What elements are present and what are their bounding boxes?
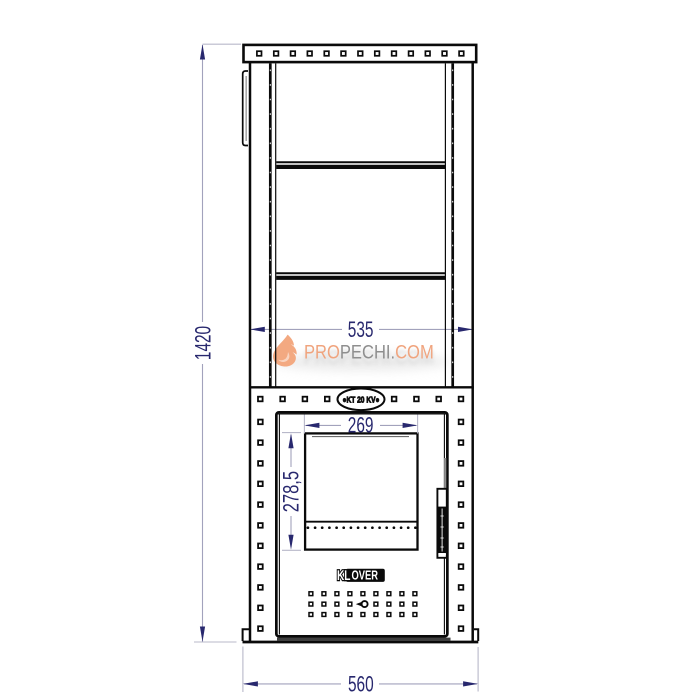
svg-text:KL: KL: [337, 567, 351, 583]
svg-text:560: 560: [348, 673, 374, 697]
svg-text:278,5: 278,5: [279, 471, 304, 512]
svg-text:●KT 20 KV●: ●KT 20 KV●: [342, 394, 379, 404]
svg-text:OVER: OVER: [352, 568, 379, 583]
svg-text:PROPECHI.COM: PROPECHI.COM: [304, 341, 434, 363]
svg-text:1420: 1420: [192, 326, 216, 360]
svg-text:535: 535: [348, 318, 374, 342]
svg-text:269: 269: [348, 414, 374, 438]
